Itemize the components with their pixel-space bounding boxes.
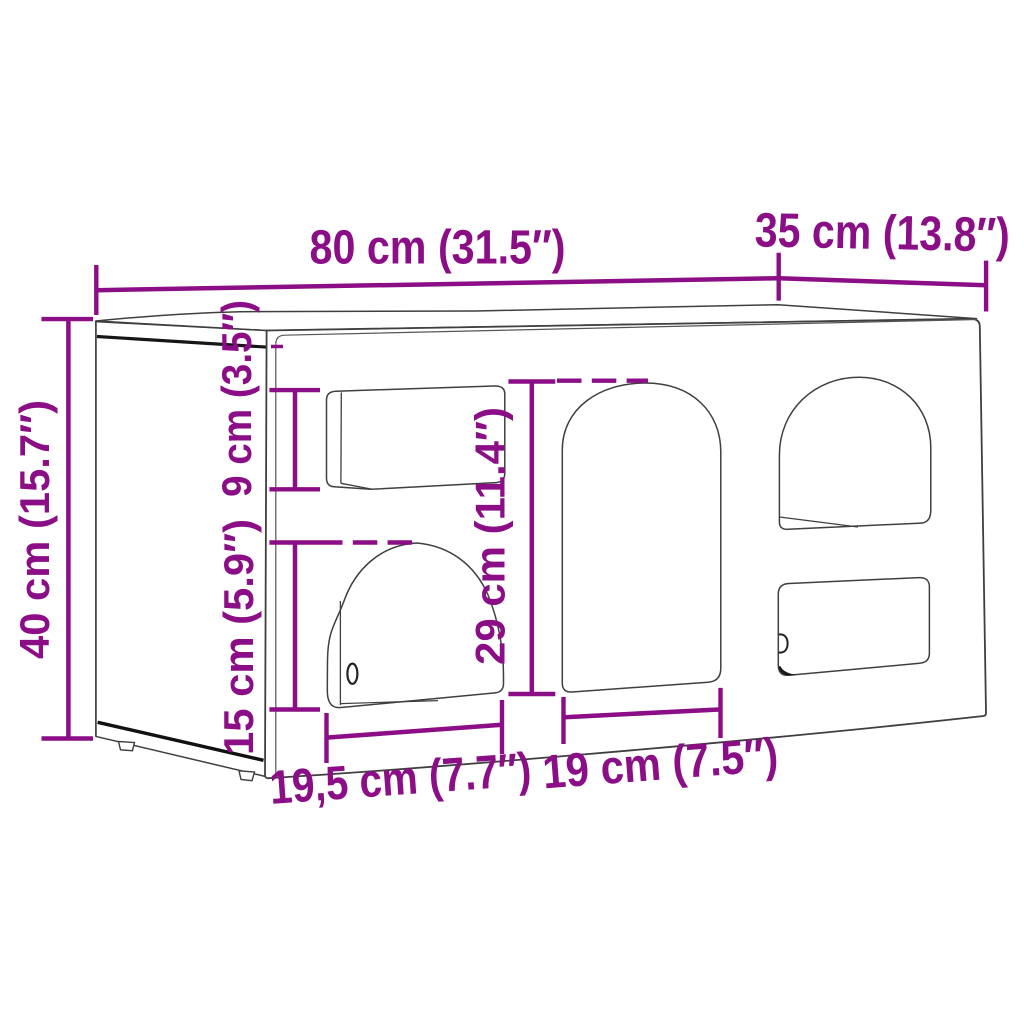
svg-text:80 cm (31.5″): 80 cm (31.5″) xyxy=(310,221,566,275)
svg-text:9 cm (3.5″): 9 cm (3.5″) xyxy=(213,300,260,497)
svg-text:35 cm (13.8″): 35 cm (13.8″) xyxy=(754,203,1010,262)
svg-text:40 cm (15.7″): 40 cm (15.7″) xyxy=(11,400,58,659)
svg-text:15 cm (5.9″): 15 cm (5.9″) xyxy=(215,519,262,755)
svg-text:29 cm (11.4″): 29 cm (11.4″) xyxy=(467,407,514,665)
